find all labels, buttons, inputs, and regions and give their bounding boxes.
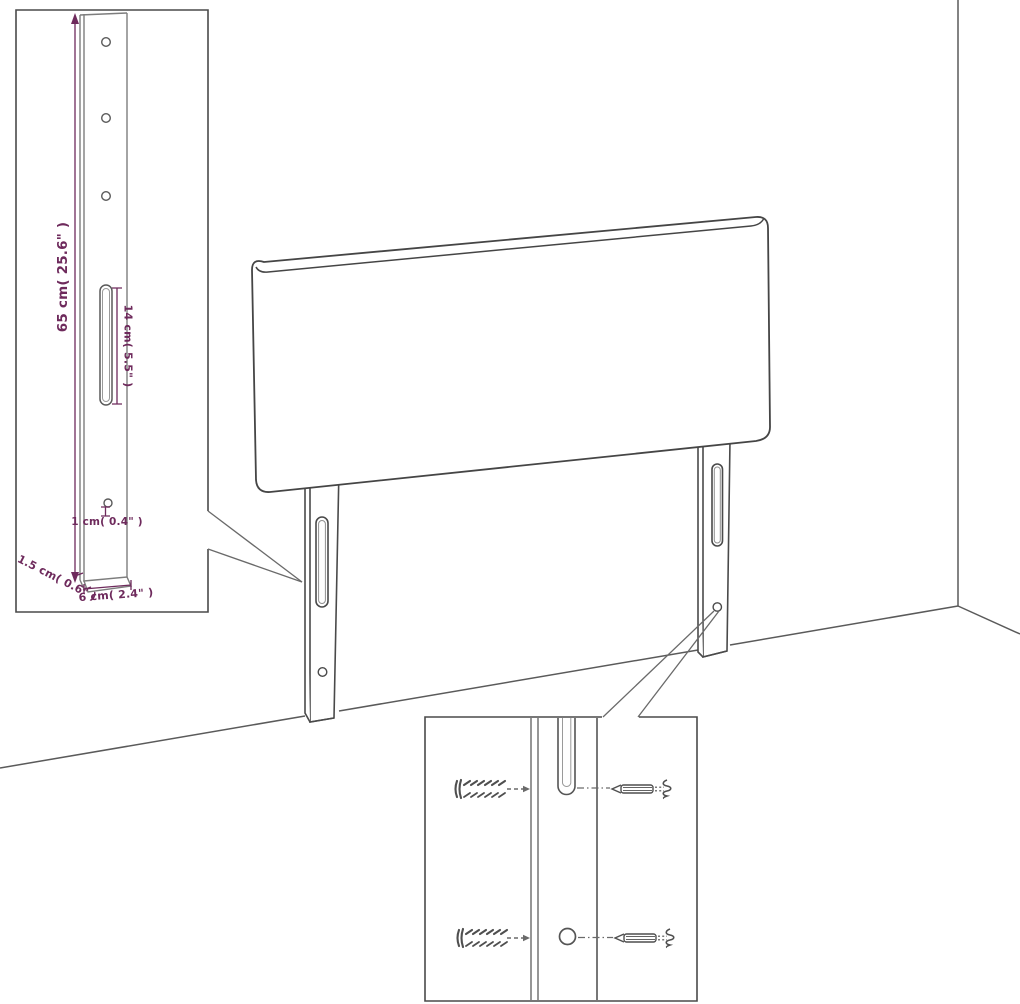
wall-plug-icon xyxy=(458,929,508,947)
screw-icon xyxy=(612,780,671,799)
dimension-label-slot-length: 14 cm( 5.5" ) xyxy=(122,305,135,388)
callout-lines-left xyxy=(208,511,302,582)
right-leg-slot xyxy=(712,464,723,546)
screw-detail-inset xyxy=(425,717,697,1001)
inset-leg-drawing xyxy=(80,13,131,592)
headboard xyxy=(252,217,770,492)
screw-inset-box xyxy=(425,717,697,1001)
diagram-canvas xyxy=(0,0,1020,1004)
dimension-label-hole-size: 1 cm( 0.4" ) xyxy=(71,516,143,528)
wall-plug-icon xyxy=(456,780,506,798)
left-leg-hole xyxy=(318,668,327,677)
screw-icon xyxy=(615,929,674,948)
right-leg-hole xyxy=(713,603,721,611)
assembly-diagram: 65 cm( 25.6" ) 14 cm( 5.5" ) 1 cm( 0.4" … xyxy=(0,0,1020,1004)
headboard-panel xyxy=(252,217,770,492)
magnified-leg-drawing xyxy=(531,718,597,1000)
dimension-label-leg-height: 65 cm( 25.6" ) xyxy=(55,222,71,332)
left-leg-slot xyxy=(316,517,328,607)
